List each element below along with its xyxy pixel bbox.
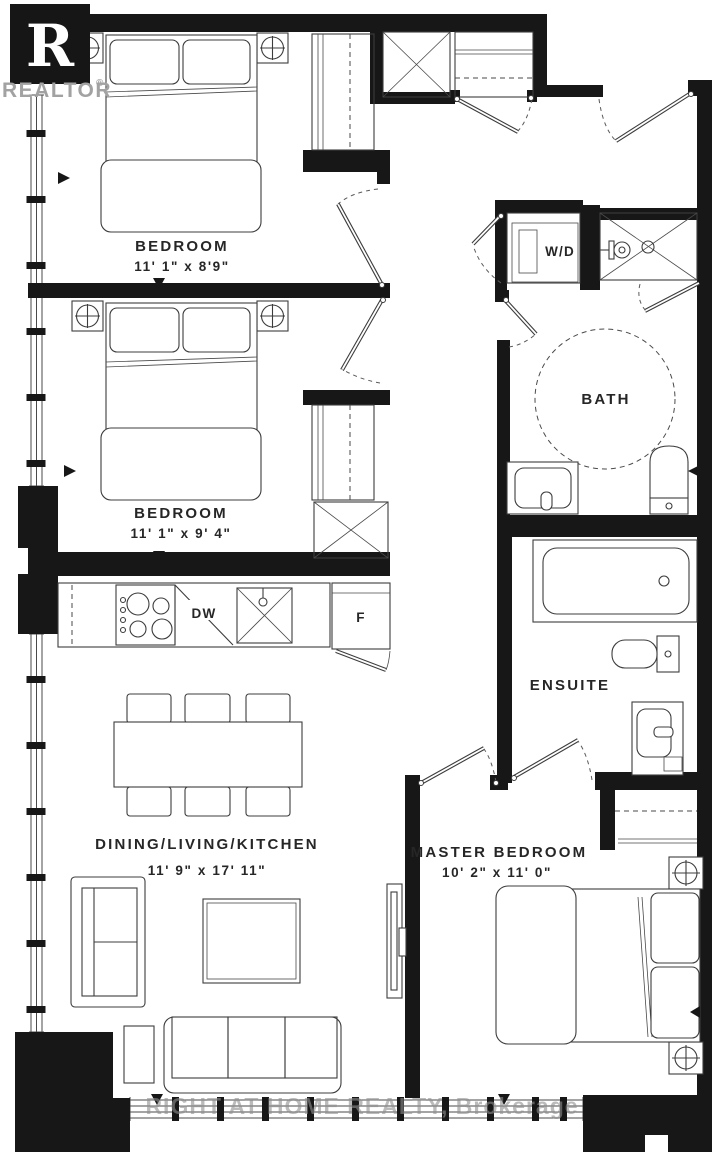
- bedroom2-wardrobe: [312, 405, 388, 558]
- floorplan-svg: BEDROOM 11' 1" x 8'9" BEDROOM 11' 1" x 9…: [0, 0, 728, 1166]
- master-dims: 10' 2" x 11' 0": [442, 865, 552, 880]
- realtor-logo-reg: ®: [96, 78, 104, 89]
- bedroom1-furniture: [72, 33, 288, 232]
- realtor-logo-letter: R: [26, 12, 75, 80]
- master-closet: [615, 811, 697, 843]
- shower: [600, 213, 699, 311]
- bath-fixtures: [507, 329, 688, 514]
- bedroom2-dims: 11' 1" x 9' 4": [131, 526, 232, 541]
- living-dims: 11' 9" x 17' 11": [148, 863, 266, 878]
- bedroom1-label: BEDROOM: [135, 238, 229, 255]
- floorplan-canvas: BEDROOM 11' 1" x 8'9" BEDROOM 11' 1" x 9…: [0, 0, 728, 1166]
- kitchen: [58, 583, 390, 670]
- doors: [338, 92, 694, 786]
- living-furniture: [71, 877, 406, 1093]
- bedroom2-furniture: [72, 301, 288, 500]
- entry-shaft: [383, 32, 450, 97]
- master-furniture: [496, 857, 703, 1074]
- living-label: DINING/LIVING/KITCHEN: [95, 836, 319, 853]
- dining-set: [114, 694, 302, 816]
- master-label: MASTER BEDROOM: [411, 844, 588, 861]
- bedroom1-dims: 11' 1" x 8'9": [134, 259, 230, 274]
- entry-closet: [455, 32, 533, 97]
- bath-label: BATH: [581, 391, 630, 408]
- washer-dryer-label: W/D: [545, 244, 575, 259]
- dishwasher-label: DW: [192, 606, 217, 621]
- bedroom1-wardrobe: [312, 34, 374, 150]
- bedroom2-label: BEDROOM: [134, 505, 228, 522]
- brokerage-watermark: RIGHT AT HOME REALTY, Brokerage: [145, 1093, 578, 1119]
- fridge-label: F: [356, 610, 365, 625]
- ensuite-label: ENSUITE: [530, 677, 610, 694]
- ensuite-fixtures: [533, 540, 697, 775]
